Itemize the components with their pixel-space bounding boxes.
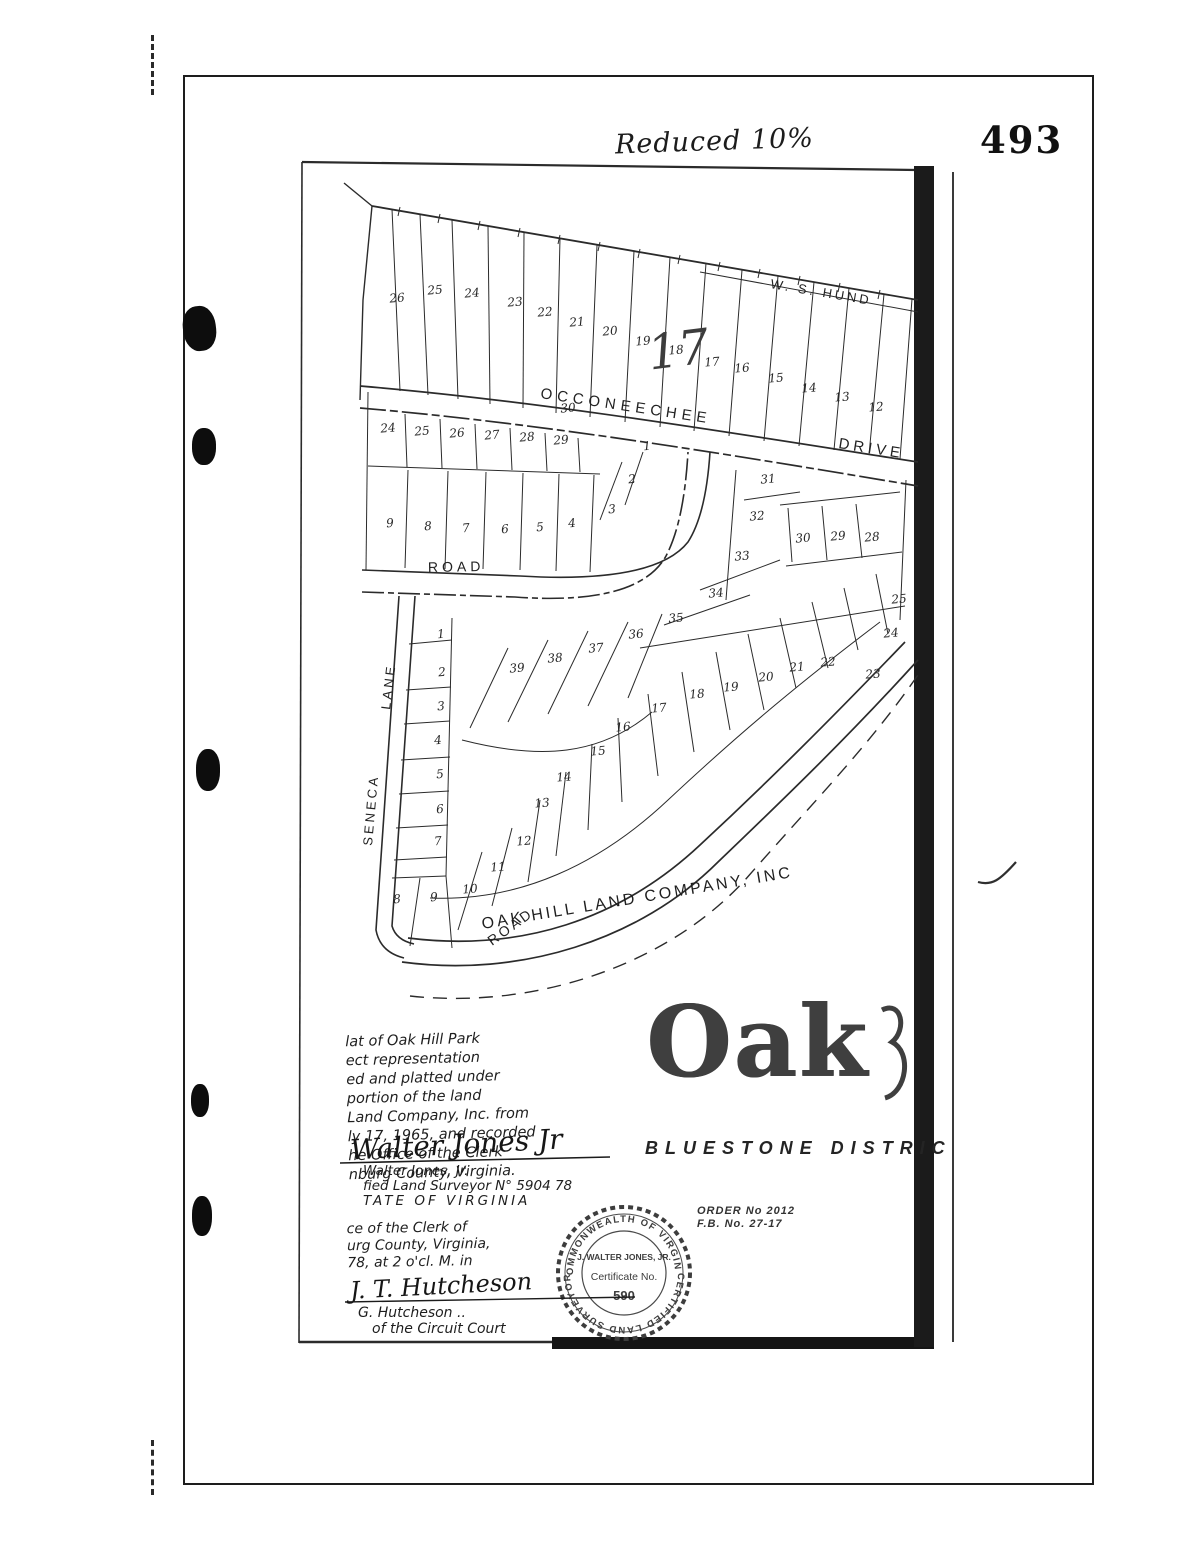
street-label-occoneechee: OCCONEECHEE xyxy=(539,385,712,427)
boundary-corner-flick xyxy=(344,183,372,206)
plat-map-drawing: W. S. HUND OCCONEECHEE DRIVE ROAD SENECA… xyxy=(0,0,1200,1553)
scanned-plat-page: 493 Reduced 10% xyxy=(0,0,1200,1553)
clerk-attestation: G. Hutcheson .. of the Circuit Court xyxy=(358,1305,506,1337)
plat-title: Oak xyxy=(646,985,869,1100)
seal-cert-number: 590 xyxy=(613,1288,635,1303)
occoneechee-drive-top xyxy=(360,386,918,462)
street-label-mid-road: ROAD xyxy=(428,558,485,575)
plat-right-bar xyxy=(914,166,934,1347)
street-label-lane: LANE xyxy=(378,663,398,710)
street-label-drive: DRIVE xyxy=(837,435,905,462)
order-reference: ORDER No 2012 F.B. No. 27-17 xyxy=(697,1205,795,1231)
surveyor-name-line: Walter Jones, Jr. xyxy=(363,1164,572,1179)
clerk-title-line: of the Circuit Court xyxy=(372,1321,506,1337)
field-book-line: F.B. No. 27-17 xyxy=(697,1218,795,1231)
bottom-road-dashed-offset xyxy=(410,672,920,998)
adjacent-owner-label: W. S. HUND xyxy=(770,276,873,308)
boundary-left xyxy=(360,206,372,400)
seal-name: J. WALTER JONES, JR. xyxy=(577,1252,671,1262)
mid-road-top xyxy=(362,452,710,577)
surveyor-credentials: Walter Jones, Jr. fied Land Surveyor N° … xyxy=(363,1164,572,1209)
plat-top-edge xyxy=(302,162,916,170)
surveyor-state-line: TATE OF VIRGINIA xyxy=(363,1194,572,1209)
surveyor-cert-line: fied Land Surveyor N° 5904 78 xyxy=(363,1179,572,1194)
bottom-road-outer xyxy=(402,660,918,966)
clerk-name-line: G. Hutcheson .. xyxy=(358,1305,506,1321)
seal-cert-label: Certificate No. xyxy=(591,1271,658,1283)
street-label-seneca: SENECA xyxy=(360,774,381,847)
order-number-line: ORDER No 2012 xyxy=(697,1205,795,1218)
district-label: BLUESTONE DISTRIC xyxy=(645,1138,952,1159)
clerk-line: 78, at 2 o'cl. M. in xyxy=(347,1253,491,1273)
clerk-recording-text: ce of the Clerk of urg County, Virginia,… xyxy=(347,1219,491,1272)
checkmark-annotation xyxy=(978,862,1016,883)
clipped-title-fragment xyxy=(882,1008,905,1098)
pencil-annotation-17: 17 xyxy=(645,318,712,381)
plat-left-edge xyxy=(299,162,302,1343)
